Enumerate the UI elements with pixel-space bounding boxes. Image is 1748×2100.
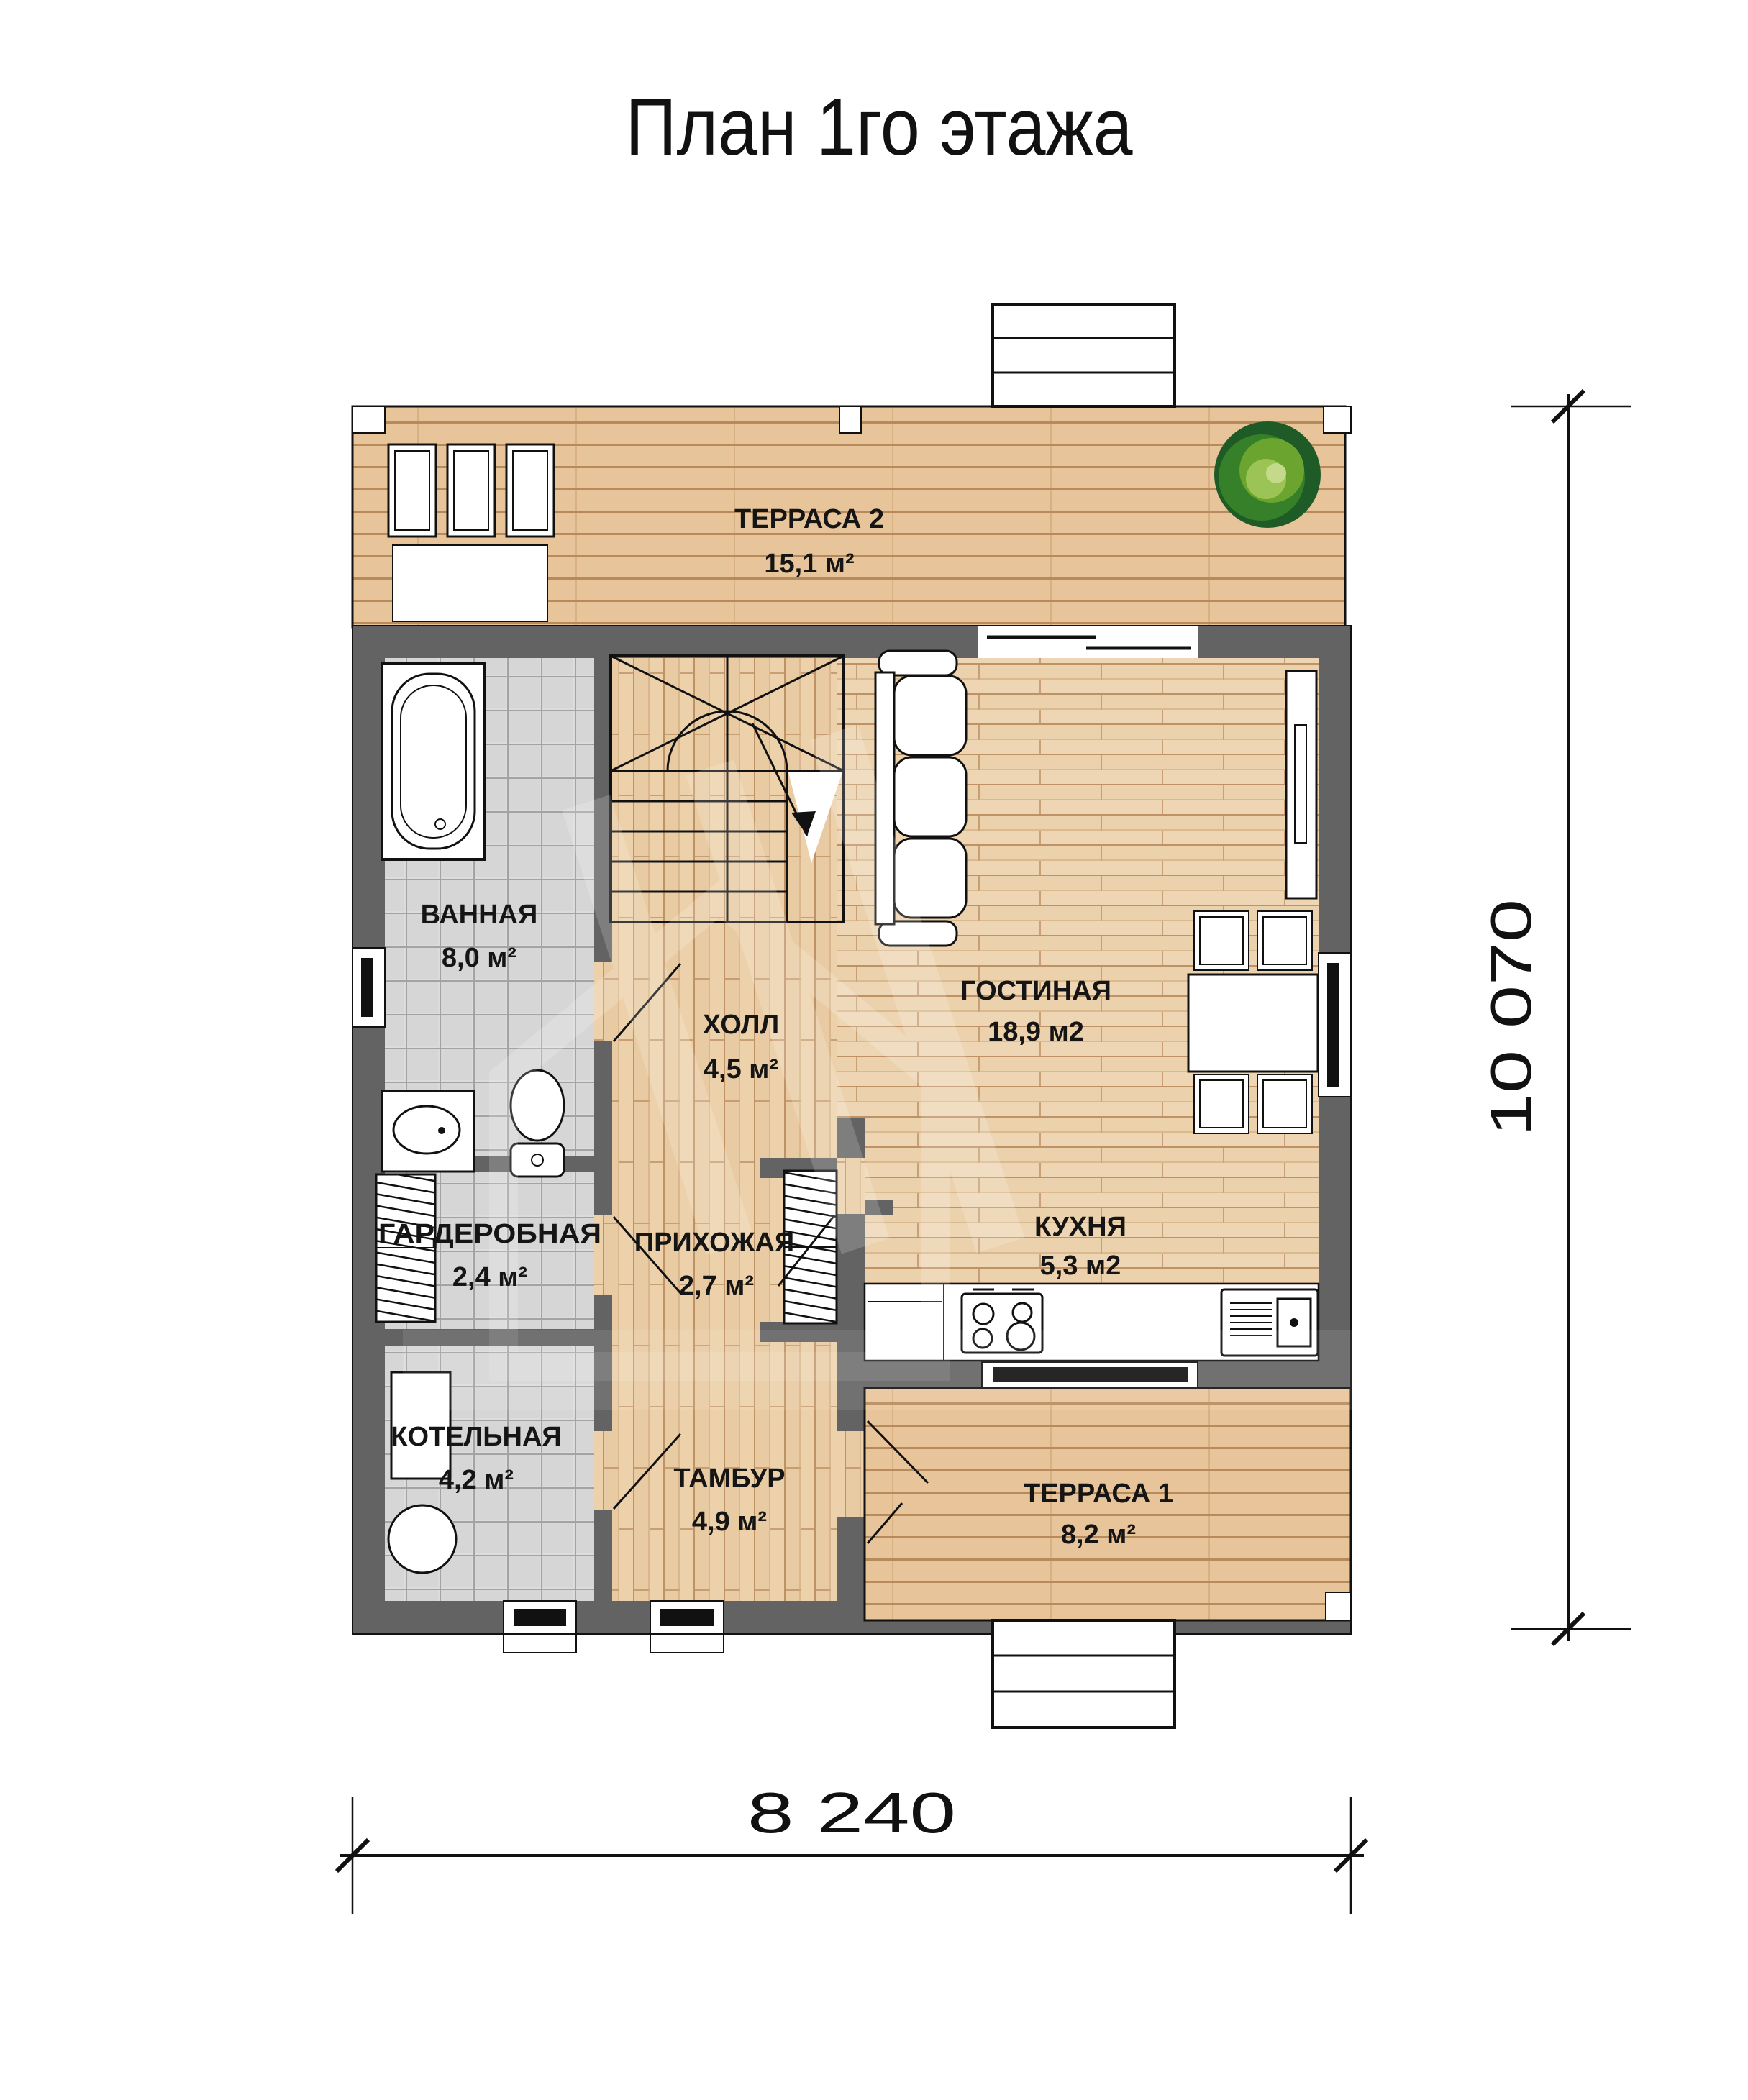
room-area-wardrobe: 2,4 м² xyxy=(452,1262,527,1292)
room-label-hall: ХОЛЛ xyxy=(703,1010,779,1040)
room-label-terrace1: ТЕРРАСА 1 xyxy=(1024,1479,1173,1509)
room-area-hallway: 2,7 м² xyxy=(679,1271,754,1301)
dimension-height: 10 070 xyxy=(1479,391,1631,1645)
living-top-window-icon xyxy=(978,626,1198,658)
room-label-terrace2: ТЕРРАСА 2 xyxy=(734,504,884,534)
room-area-hall: 4,5 м² xyxy=(704,1054,778,1085)
boiler-door-opening xyxy=(594,1431,612,1510)
floor-plan-drawing: 10 070 8 240 План 1го этажа ТЕРРАСА 2 15… xyxy=(0,0,1748,2100)
room-area-vestibule: 4,9 м² xyxy=(692,1507,767,1537)
tv-cabinet-icon xyxy=(1286,671,1316,898)
toilet-icon xyxy=(511,1070,564,1177)
floor-plan-page: 10 070 8 240 План 1го этажа ТЕРРАСА 2 15… xyxy=(0,0,1748,2100)
room-area-kitchen: 5,3 м2 xyxy=(1040,1251,1121,1281)
width-dimension-label: 8 240 xyxy=(747,1781,956,1845)
terrace1-door-opening xyxy=(837,1431,865,1517)
terrace2-table-icon xyxy=(393,545,547,621)
room-label-vestibule: ТАМБУР xyxy=(673,1464,785,1494)
page-title: План 1го этажа xyxy=(626,82,1134,172)
room-area-living: 18,9 м2 xyxy=(988,1017,1084,1047)
room-label-bathroom: ВАННАЯ xyxy=(421,900,538,930)
living-right-window-icon xyxy=(1319,953,1351,1097)
steps-top-icon xyxy=(993,304,1175,406)
vestibule-window-icon xyxy=(650,1601,724,1653)
room-label-living: ГОСТИНАЯ xyxy=(960,976,1111,1006)
boiler-window-icon xyxy=(504,1601,576,1653)
bathroom-window-icon xyxy=(352,948,385,1027)
bathtub-icon xyxy=(382,663,485,859)
room-label-hallway: ПРИХОЖАЯ xyxy=(634,1228,795,1258)
bathroom-sink-icon xyxy=(382,1091,474,1172)
dimension-width: 8 240 xyxy=(337,1781,1367,1914)
room-label-wardrobe: ГАРДЕРОБНАЯ xyxy=(378,1219,601,1249)
room-area-boiler: 4,2 м² xyxy=(439,1465,514,1495)
height-dimension-label: 10 070 xyxy=(1479,899,1543,1136)
tree-icon xyxy=(1214,421,1321,528)
room-area-terrace2: 15,1 м² xyxy=(764,549,854,579)
terrace2-planters-icon xyxy=(388,444,554,537)
room-label-kitchen: КУХНЯ xyxy=(1034,1212,1126,1242)
steps-bottom-icon xyxy=(993,1620,1175,1727)
room-label-boiler: КОТЕЛЬНАЯ xyxy=(391,1422,561,1452)
room-area-bathroom: 8,0 м² xyxy=(442,943,516,973)
room-area-terrace1: 8,2 м² xyxy=(1061,1520,1136,1550)
